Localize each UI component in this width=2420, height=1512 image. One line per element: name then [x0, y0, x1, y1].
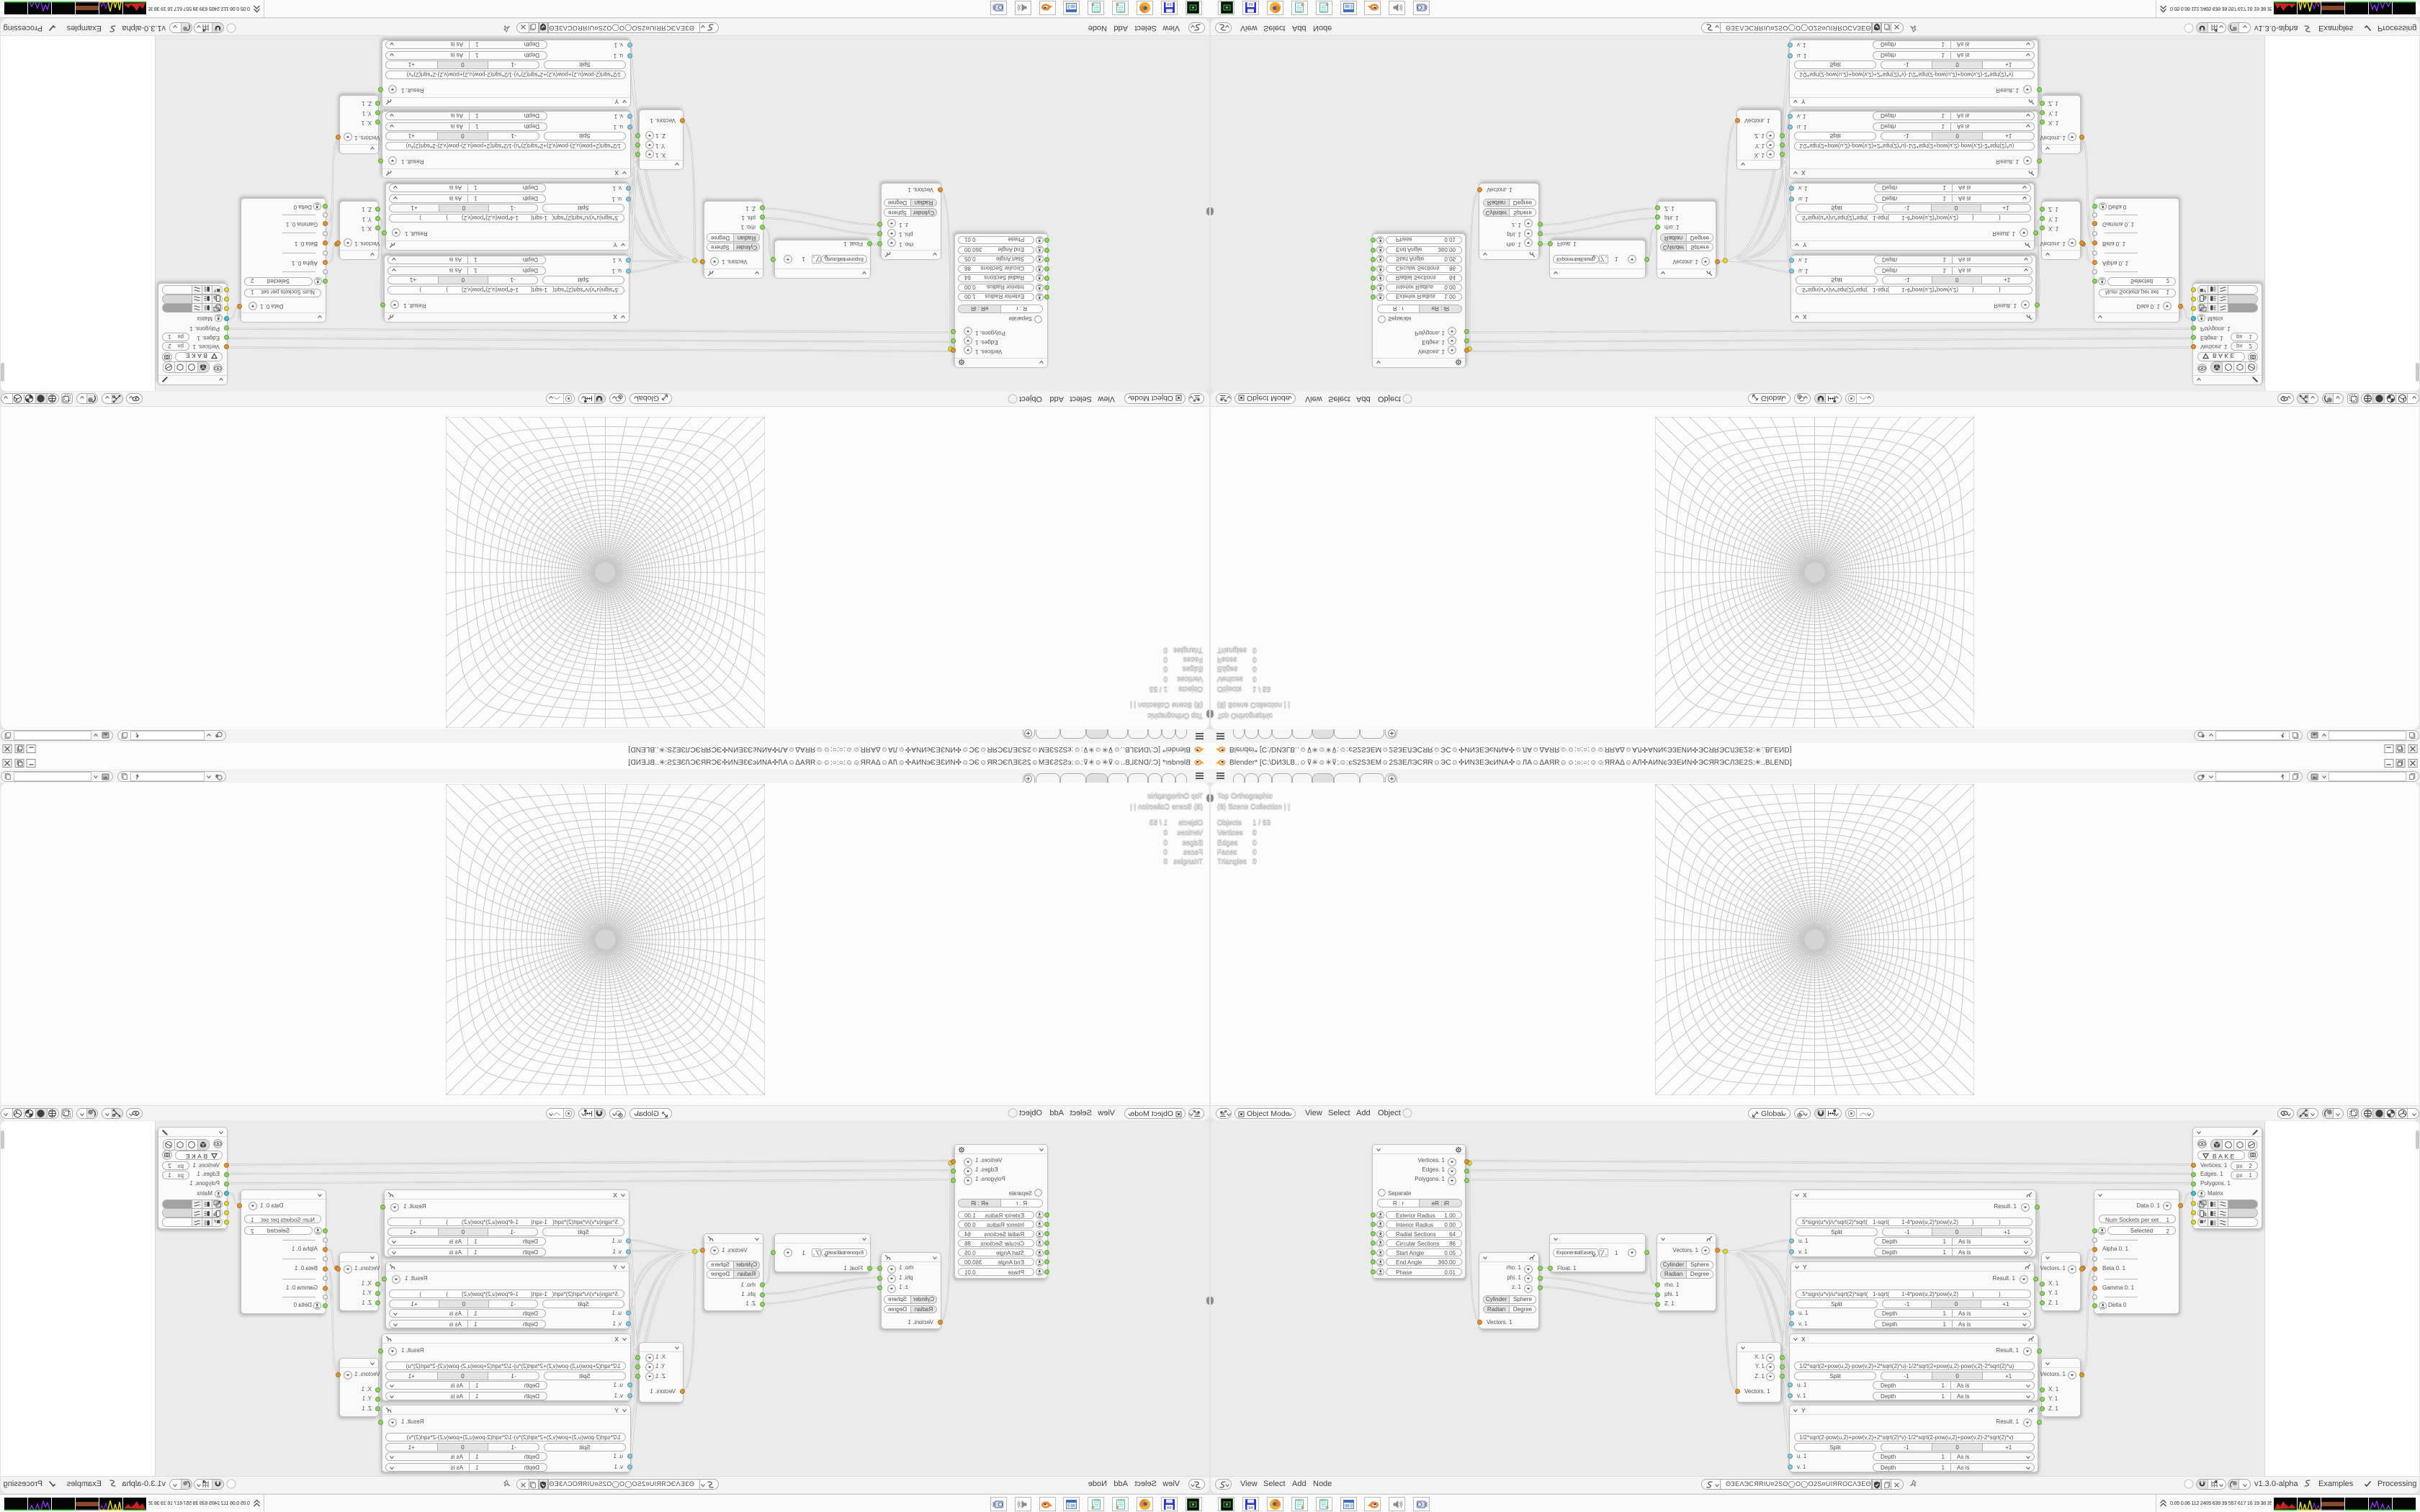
svg-text:64: 64	[1249, 2, 1253, 6]
svg-text:64: 64	[1249, 1506, 1253, 1511]
svg-text:64: 64	[1167, 2, 1171, 6]
svg-text:64: 64	[1167, 1506, 1171, 1511]
